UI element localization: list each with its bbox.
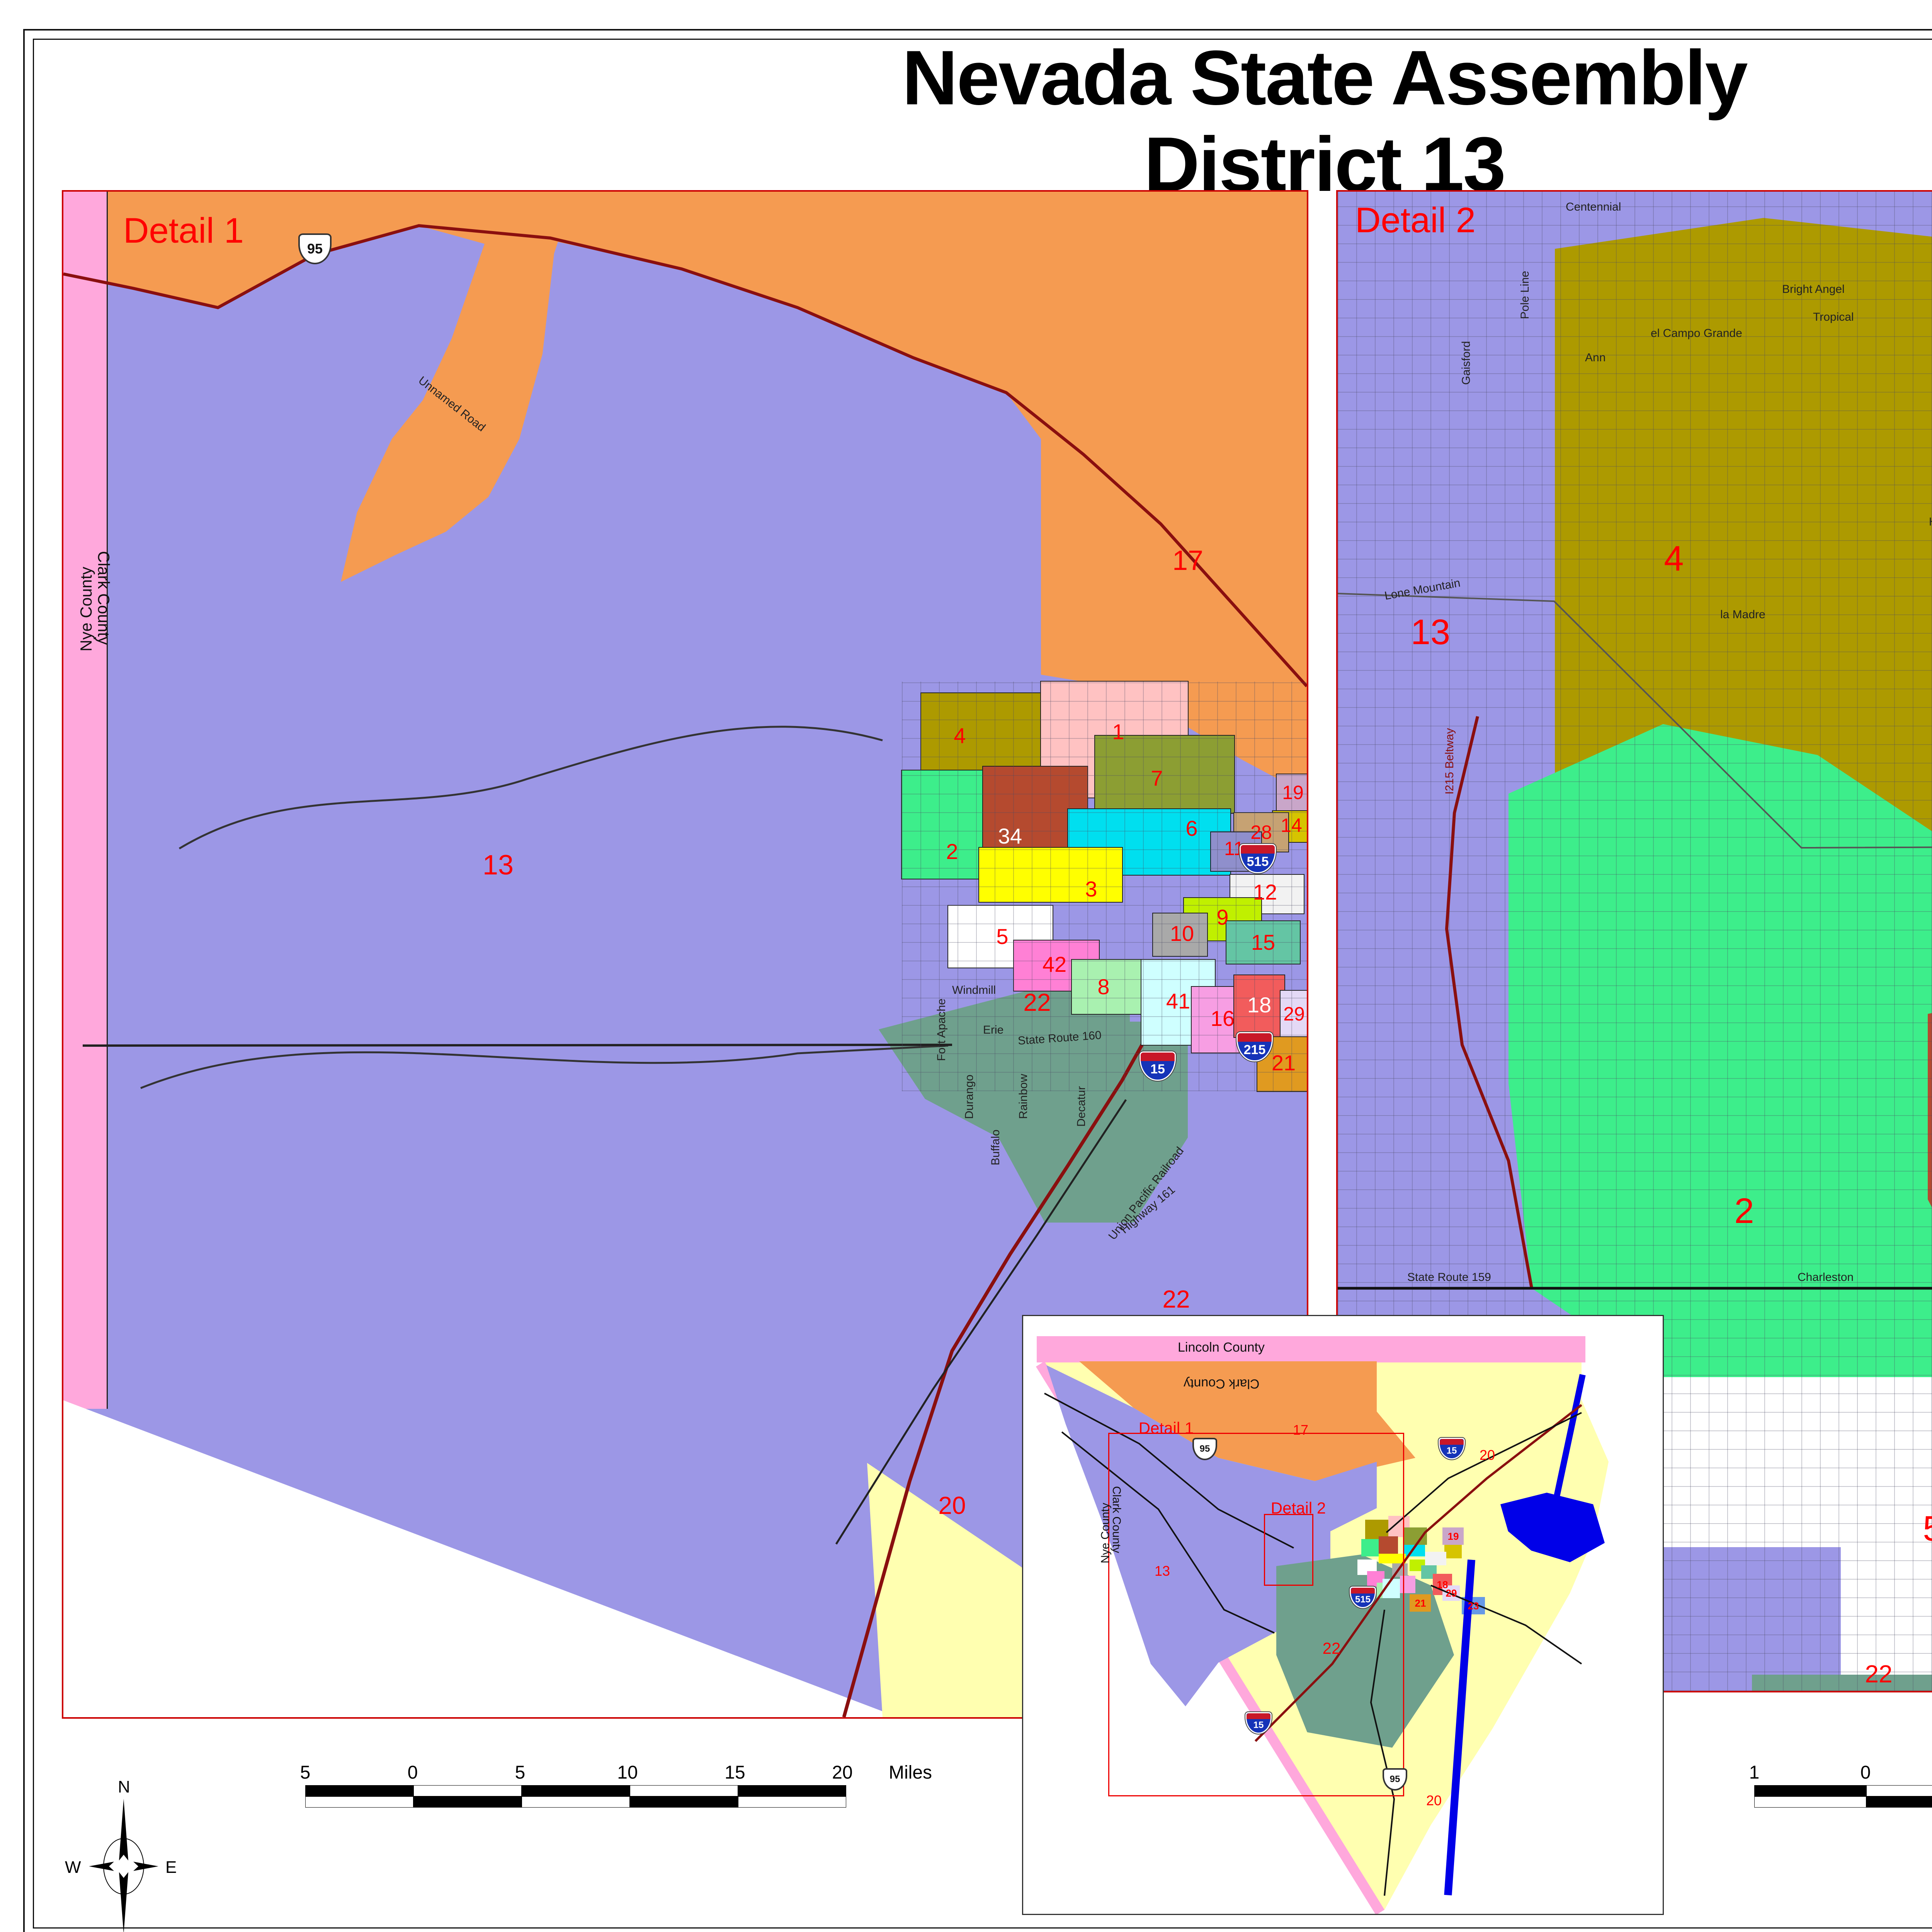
inset-road-2 xyxy=(1386,1413,1582,1532)
us95-highway-line xyxy=(63,226,1307,686)
district-label-17: 17 xyxy=(1172,547,1203,575)
compass-north-spike xyxy=(119,1799,128,1861)
map-sheet: Nevada State Assembly District 13 xyxy=(0,0,1932,1932)
road-label-windmill: Windmill xyxy=(952,985,996,996)
i15-shield-bar xyxy=(1141,1053,1175,1061)
us95-shield-number: 95 xyxy=(307,241,323,257)
inset-detail1-label: Detail 1 xyxy=(1139,1420,1194,1436)
region-district7 xyxy=(1095,736,1234,813)
inset-i15a-number: 15 xyxy=(1447,1446,1457,1456)
sbl-seg xyxy=(413,1796,522,1808)
sbl-seg xyxy=(305,1796,413,1808)
inset-i15b-number: 15 xyxy=(1253,1720,1264,1731)
sbr-seg xyxy=(1866,1785,1932,1796)
region-district3 xyxy=(979,848,1122,902)
district-label-8: 8 xyxy=(1097,976,1109,998)
sbr-seg xyxy=(1866,1796,1932,1808)
district-label-15: 15 xyxy=(1251,932,1275,953)
district-label-41: 41 xyxy=(1166,990,1190,1012)
road2-gaisford: Gaisford xyxy=(1461,341,1472,385)
inset-label-22: 22 xyxy=(1323,1640,1341,1656)
sbl-tick-3: 10 xyxy=(617,1762,638,1783)
compass-east-spike xyxy=(133,1862,158,1871)
sbl-tick-2: 5 xyxy=(515,1762,526,1783)
district-label-3: 3 xyxy=(1085,878,1097,900)
sbr-seg xyxy=(1754,1796,1866,1808)
district2-label-2: 2 xyxy=(1734,1193,1754,1229)
district-label-5: 5 xyxy=(996,926,1008,947)
i215-beltway-line xyxy=(1447,716,1532,1288)
inset-label-29: 29 xyxy=(1446,1588,1457,1598)
sbl-seg xyxy=(522,1785,630,1796)
i515-shield-bar xyxy=(1241,845,1275,854)
inset-label-13: 13 xyxy=(1155,1564,1170,1578)
sbl-seg xyxy=(738,1796,846,1808)
compass-icon xyxy=(62,1777,185,1932)
road2-campogrande: el Campo Grande xyxy=(1651,328,1742,339)
inset-label-20b: 20 xyxy=(1426,1794,1442,1808)
inset-label-20a: 20 xyxy=(1480,1448,1495,1462)
inset-county-clark-left: Clark County xyxy=(1110,1486,1123,1553)
rural-road-2 xyxy=(141,1046,948,1088)
district2-label-5: 5 xyxy=(1923,1511,1932,1546)
inset-detail1-extent xyxy=(1108,1433,1404,1796)
district2-label-4: 4 xyxy=(1664,541,1684,577)
district-label-1: 1 xyxy=(1112,721,1124,743)
road2-beltway: I215 Beltway xyxy=(1444,728,1456,794)
district2-label-13: 13 xyxy=(1411,614,1450,650)
page-title: Nevada State Assembly District 13 xyxy=(0,35,1932,208)
inset-map: Detail 1 Detail 2 17 13 20 20 22 19 18 2… xyxy=(1022,1315,1664,1915)
district2-label-22: 22 xyxy=(1865,1662,1892,1686)
compass-rose: N S W E xyxy=(62,1777,185,1932)
effective-date-note: Districts are effective on October 1, 20… xyxy=(1816,1891,1932,1917)
inset-detail2-label: Detail 2 xyxy=(1271,1500,1326,1516)
district-label-34: 34 xyxy=(998,825,1022,847)
road2-brightangel: Bright Angel xyxy=(1782,284,1845,295)
inset-i15b-bar xyxy=(1247,1713,1270,1719)
district-label-28: 28 xyxy=(1250,823,1272,842)
district-label-9: 9 xyxy=(1216,906,1228,928)
scalebar-left: 5 0 5 10 15 20 Miles xyxy=(305,1762,923,1812)
sbl-seg xyxy=(305,1785,413,1796)
i215-shield-number: 215 xyxy=(1244,1043,1266,1058)
i215-shield-bar xyxy=(1238,1033,1272,1042)
inset-i515-number: 515 xyxy=(1355,1594,1371,1605)
district-label-2: 2 xyxy=(946,841,958,862)
inset-label-19: 19 xyxy=(1448,1531,1459,1541)
district-label-42: 42 xyxy=(1043,954,1066,975)
district-label-12: 12 xyxy=(1253,881,1277,903)
compass-w: W xyxy=(65,1858,81,1877)
road-label-rainbow: Rainbow xyxy=(1018,1074,1029,1119)
sbl-seg xyxy=(738,1785,846,1796)
road2-centennial: Centennial xyxy=(1566,201,1621,213)
road2-lamadre: la Madre xyxy=(1720,609,1765,621)
sbl-tick-1: 0 xyxy=(408,1762,418,1783)
district-label-10: 10 xyxy=(1170,923,1194,944)
scalebar-right-bar xyxy=(1754,1785,1932,1808)
sbl-row2 xyxy=(305,1796,846,1808)
compass-south-spike xyxy=(119,1872,128,1932)
scalebar-left-ticks: 5 0 5 10 15 20 Miles xyxy=(305,1762,923,1783)
scalebar-right: 1 0 1 2 3 4 Miles xyxy=(1754,1762,1932,1812)
sbr-row1 xyxy=(1754,1785,1932,1796)
sr160-line xyxy=(83,1045,952,1046)
inset-i15a-bar xyxy=(1440,1439,1464,1445)
district-label-6: 6 xyxy=(1185,818,1197,839)
sbr-tick-0: 1 xyxy=(1749,1762,1760,1783)
rural-road-1 xyxy=(179,727,883,849)
sbr-row2 xyxy=(1754,1796,1932,1808)
compass-west-spike xyxy=(89,1862,114,1871)
road-label-fortapache: Fort Apache xyxy=(936,998,947,1061)
scalebar-right-ticks: 1 0 1 2 3 4 Miles xyxy=(1754,1762,1932,1783)
sbl-tick-4: 15 xyxy=(724,1762,745,1783)
road-label-erie: Erie xyxy=(983,1024,1003,1036)
title-line1: Nevada State Assembly xyxy=(0,35,1932,121)
district-label-14: 14 xyxy=(1281,816,1302,835)
district-label-20: 20 xyxy=(938,1493,966,1518)
road2-sr159: State Route 159 xyxy=(1407,1272,1491,1283)
district-label-16: 16 xyxy=(1211,1008,1235,1029)
compass-n: N xyxy=(118,1777,130,1797)
sbr-tick-1: 0 xyxy=(1861,1762,1871,1783)
road2-poleline: Pole Line xyxy=(1519,271,1531,319)
inset-us95b-number: 95 xyxy=(1390,1774,1400,1785)
sbl-row1 xyxy=(305,1785,846,1796)
road2-tropical: Tropical xyxy=(1813,311,1854,323)
road2-hammer: Hammer xyxy=(1929,516,1932,528)
inset-detail2-extent xyxy=(1264,1514,1313,1586)
sbl-seg xyxy=(413,1785,522,1796)
district-label-4: 4 xyxy=(954,725,966,747)
district-label-13: 13 xyxy=(483,851,514,879)
compass-e: E xyxy=(165,1858,177,1877)
district-label-19: 19 xyxy=(1282,783,1304,802)
county-label-nye: Nye County xyxy=(77,567,95,651)
inset-label-17: 17 xyxy=(1293,1423,1308,1437)
road2-charleston: Charleston xyxy=(1798,1272,1854,1283)
inset-county-lincoln: Lincoln County xyxy=(1178,1340,1265,1355)
inset-label-23: 23 xyxy=(1468,1601,1479,1611)
detail2-title: Detail 2 xyxy=(1355,202,1476,238)
district-label-29: 29 xyxy=(1283,1004,1305,1024)
district-label-21: 21 xyxy=(1272,1052,1296,1074)
scalebar-left-bar xyxy=(305,1785,846,1808)
i15-shield-number: 15 xyxy=(1150,1062,1165,1077)
county-label-clark: Clark County xyxy=(94,551,113,645)
road-label-durango: Durango xyxy=(964,1075,975,1119)
sbl-unit: Miles xyxy=(889,1762,932,1783)
district-label-7: 7 xyxy=(1151,767,1163,789)
road-label-decatur: Decatur xyxy=(1076,1086,1087,1127)
sbr-seg xyxy=(1754,1785,1866,1796)
inset-label-21: 21 xyxy=(1415,1598,1426,1608)
sbl-seg xyxy=(630,1785,738,1796)
sbl-tick-5: 20 xyxy=(832,1762,852,1783)
sbl-tick-0: 5 xyxy=(300,1762,311,1783)
inset-us95a-number: 95 xyxy=(1200,1444,1210,1454)
inset-county-clark-top: Clark County xyxy=(1184,1376,1260,1391)
sbl-seg xyxy=(522,1796,630,1808)
detail1-title: Detail 1 xyxy=(123,213,244,248)
road-label-buffalo: Buffalo xyxy=(990,1129,1002,1165)
sbl-seg xyxy=(630,1796,738,1808)
inset-i515-bar xyxy=(1351,1588,1375,1594)
i515-shield-number: 515 xyxy=(1247,854,1269,869)
road2-ann: Ann xyxy=(1585,352,1605,364)
district-label-22a: 22 xyxy=(1023,990,1051,1015)
district-label-18: 18 xyxy=(1247,994,1271,1016)
district-label-22b: 22 xyxy=(1162,1287,1190,1311)
